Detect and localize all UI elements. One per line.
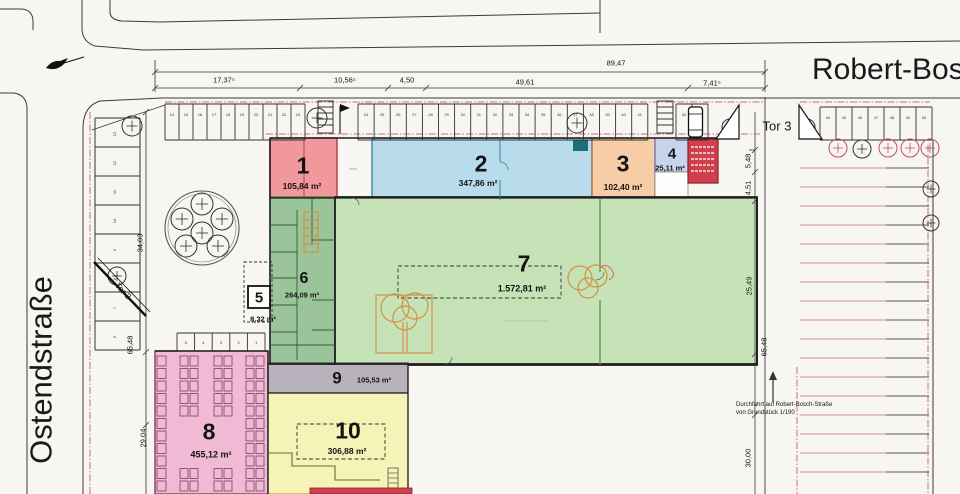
svg-text:17: 17	[212, 112, 217, 117]
area-9-size: 105,53 m²	[357, 376, 391, 384]
dim-top-2: 4,50	[400, 76, 415, 84]
svg-text:12: 12	[112, 160, 117, 165]
dim-top-0: 17,37⁵	[213, 76, 235, 84]
svg-text:24: 24	[364, 112, 369, 117]
svg-text:38: 38	[589, 112, 594, 117]
dim-top-1: 10,56⁵	[334, 76, 356, 84]
area-2-size: 347,86 m²	[459, 179, 498, 188]
area-10-number: 10	[335, 420, 361, 443]
area-3-number: 3	[617, 153, 630, 176]
svg-text:36: 36	[557, 112, 562, 117]
svg-text:32: 32	[493, 112, 498, 117]
area-8-number: 8	[203, 421, 216, 444]
svg-text:48: 48	[890, 115, 895, 120]
area-7-size: 1.572,81 m²	[498, 285, 547, 294]
svg-text:50: 50	[922, 115, 927, 120]
svg-text:14: 14	[170, 112, 175, 117]
note-line2: von Grundstück 1/190	[736, 410, 795, 416]
svg-text:1: 1	[255, 340, 258, 345]
area-4-number: 4	[668, 147, 676, 162]
svg-text:23: 23	[296, 112, 301, 117]
svg-text:30: 30	[460, 112, 465, 117]
svg-text:2: 2	[237, 340, 240, 345]
dim-right-3: 65,48	[760, 338, 768, 357]
svg-text:8: 8	[112, 277, 117, 280]
dim-left-2: 29,04	[139, 429, 147, 448]
svg-text:29: 29	[444, 112, 449, 117]
dim-right-4: 30,00	[744, 449, 752, 468]
svg-text:47: 47	[874, 115, 879, 120]
area-3-size: 102,40 m²	[604, 183, 643, 192]
svg-text:7: 7	[112, 306, 117, 309]
svg-text:9: 9	[112, 248, 117, 251]
dim-right-2: 25,49	[745, 277, 753, 296]
svg-text:13: 13	[112, 131, 117, 136]
area-9-number: 9	[332, 370, 341, 387]
svg-text:33: 33	[509, 112, 514, 117]
svg-text:39: 39	[605, 112, 610, 117]
svg-text:44: 44	[826, 115, 831, 120]
area-1-number: 1	[297, 155, 310, 178]
area-7-number: 7	[518, 253, 531, 276]
dim-left-0: 34,03	[136, 234, 144, 253]
area-5-size: 8,32 m²	[250, 315, 276, 323]
svg-text:15: 15	[184, 112, 189, 117]
svg-text:22: 22	[282, 112, 287, 117]
svg-text:6: 6	[112, 335, 117, 338]
street-name-left: Ostendstraße	[26, 276, 57, 464]
svg-text:31: 31	[477, 112, 482, 117]
dim-total-top: 89,47	[607, 59, 626, 67]
area-6-size: 264,09 m²	[285, 291, 319, 299]
svg-text:10: 10	[112, 218, 117, 223]
svg-text:41: 41	[638, 112, 643, 117]
svg-text:20: 20	[254, 112, 259, 117]
svg-text:4: 4	[202, 340, 205, 345]
area-10-size: 306,88 m²	[328, 447, 367, 456]
svg-text:18: 18	[226, 112, 231, 117]
area-5-number: 5	[255, 291, 263, 306]
site-plan: 1415161718192021222324252627282930313233…	[0, 0, 960, 494]
svg-text:42: 42	[682, 112, 687, 117]
svg-text:19: 19	[240, 112, 245, 117]
svg-text:25: 25	[380, 112, 385, 117]
area-4-size: 25,11 m²	[655, 164, 685, 172]
svg-text:26: 26	[396, 112, 401, 117]
svg-text:34: 34	[525, 112, 530, 117]
area-6-number: 6	[300, 271, 309, 287]
note-line1: Durchfahrt auf Robert-Bosch-Straße	[736, 402, 832, 408]
dim-right-0: 5,48	[744, 154, 752, 169]
svg-text:45: 45	[842, 115, 847, 120]
dim-left-1: 65,48	[126, 336, 134, 355]
svg-text:11: 11	[112, 189, 117, 194]
building-areas	[155, 138, 757, 494]
svg-text:35: 35	[541, 112, 546, 117]
street-name-top: Robert-Bosch-Straße	[812, 55, 960, 85]
area-8-size: 455,12 m²	[190, 451, 231, 460]
svg-text:40: 40	[621, 112, 626, 117]
svg-text:46: 46	[858, 115, 863, 120]
svg-text:27: 27	[412, 112, 417, 117]
area-2-number: 2	[475, 153, 488, 176]
svg-text:3: 3	[220, 340, 223, 345]
dim-right-1: 4,51	[744, 181, 752, 196]
svg-text:21: 21	[268, 112, 273, 117]
svg-text:28: 28	[428, 112, 433, 117]
dim-top-3: 49,61	[516, 78, 535, 86]
gate-tor3-label: Tor 3	[763, 120, 792, 133]
svg-text:5: 5	[185, 340, 188, 345]
svg-text:49: 49	[906, 115, 911, 120]
area-1-size: 105,84 m²	[283, 182, 322, 191]
svg-text:16: 16	[198, 112, 203, 117]
dim-top-4: 7,41⁵	[703, 79, 721, 87]
